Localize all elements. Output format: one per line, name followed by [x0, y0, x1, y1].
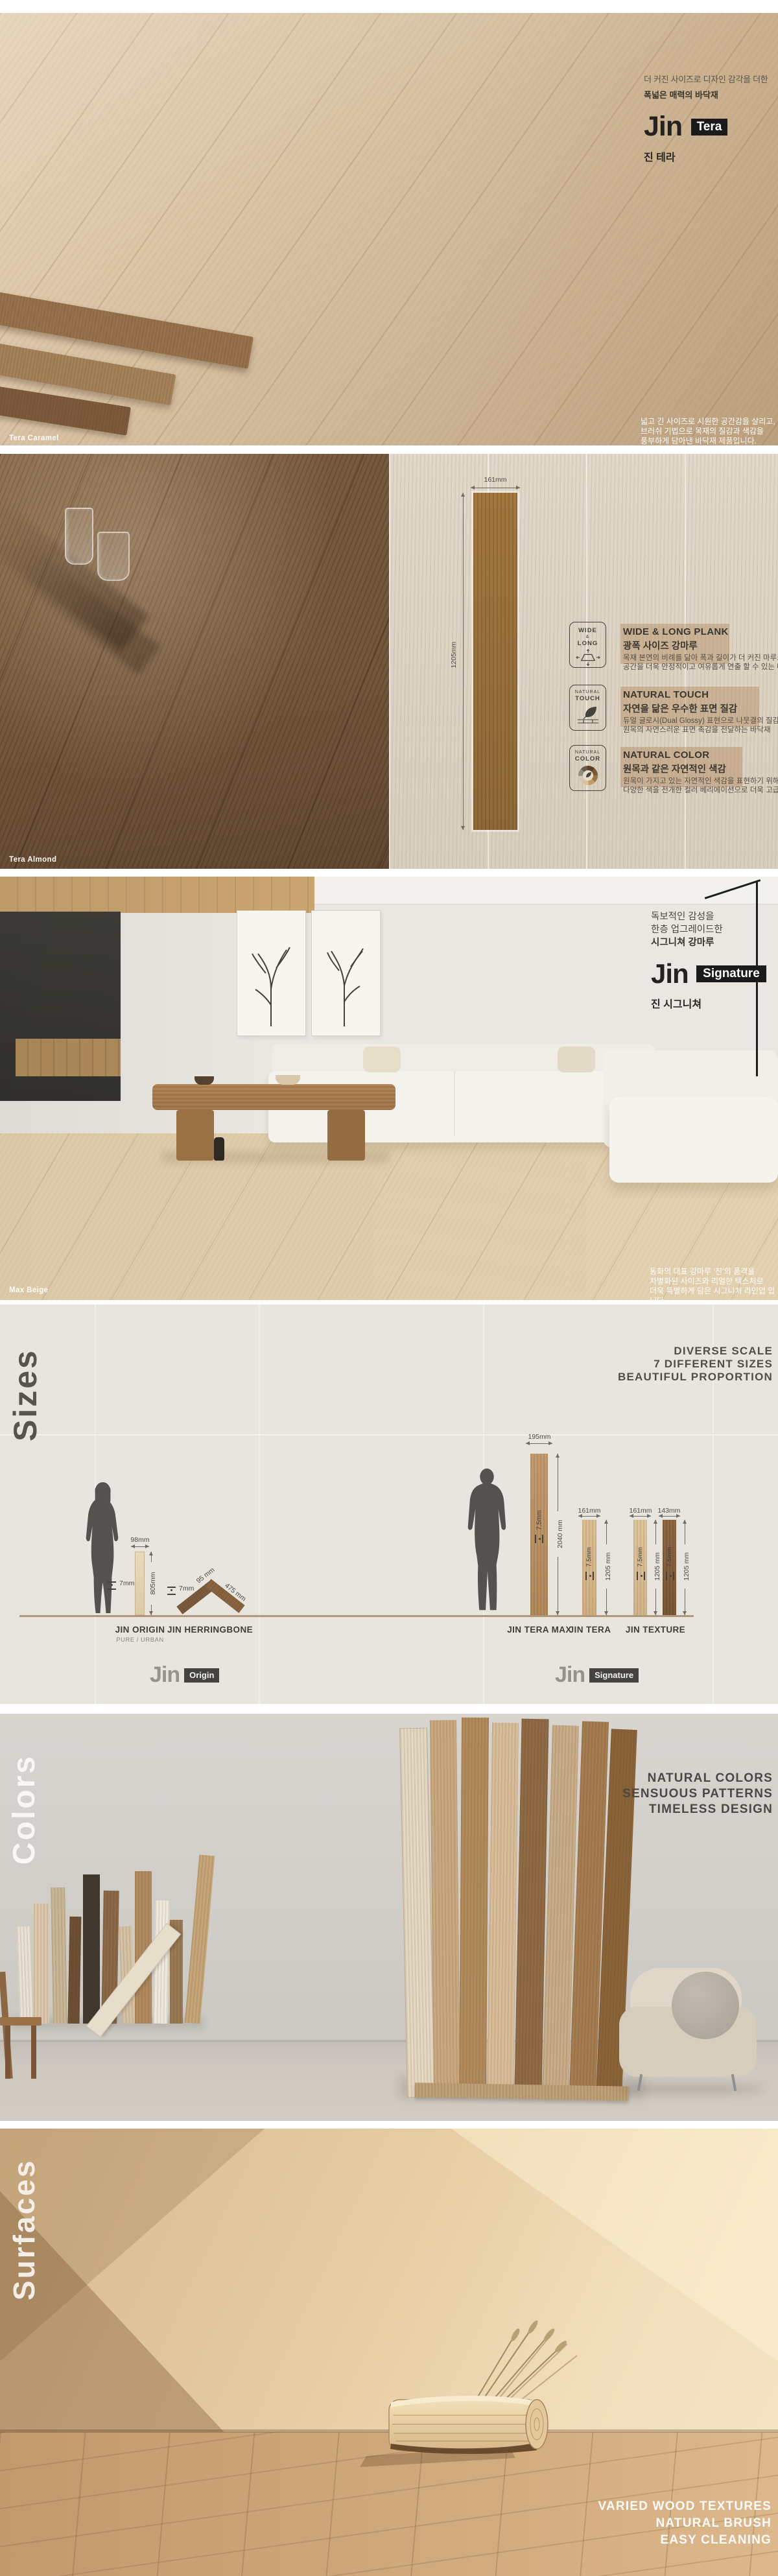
teramax-thickness-label: 7.5mm — [536, 1506, 543, 1535]
origin-thickness-icon — [108, 1581, 116, 1590]
sizes-heading: DIVERSE SCALE 7 DIFFERENT SIZES BEAUTIFU… — [618, 1345, 773, 1384]
jin-logo-text: Jin — [644, 111, 682, 142]
spec1-body2: 공간을 더욱 안정적이고 여유롭게 연출 할 수 있는 바닥재 — [623, 661, 778, 672]
signature-swatch-label: Max Beige — [9, 1286, 48, 1294]
origin-width-label: 98mm — [108, 1536, 172, 1544]
origin-logo-badge: Origin — [184, 1668, 219, 1683]
signature-intro-line2: 한층 업그레이드한 — [651, 923, 774, 936]
tera-thickness-icon — [585, 1572, 594, 1580]
tera-logo-row: Jin Tera — [644, 111, 773, 143]
table-leg-right — [327, 1110, 365, 1161]
surfaces-heading-line1: VARIED WOOD TEXTURES — [598, 2498, 772, 2515]
section-surfaces: Surfaces VARIED WOOD TEXTURES NATURAL BR… — [0, 2129, 778, 2576]
tree-painting-right — [311, 910, 381, 1036]
spec3-body2: 다양한 색을 전개한 컬러 베리에이션으로 더욱 고급스러워진 패턴 — [623, 785, 778, 795]
tera-width-arrow — [578, 1516, 600, 1517]
signature-intro-line1: 독보적인 감성을 — [651, 910, 774, 923]
color-icon-bottom: COLOR — [570, 755, 606, 763]
colors-heading-line1: NATURAL COLORS — [622, 1771, 773, 1786]
touch-icon-bottom: TOUCH — [570, 695, 606, 703]
signature-logo-row: Jin Signature — [651, 958, 774, 989]
natural-color-iconbox: NATURAL COLOR — [569, 745, 606, 791]
tall-plank-2 — [430, 1720, 460, 2096]
teramax-thickness-icon — [535, 1535, 543, 1543]
leaf-plank-icon — [576, 705, 600, 726]
section-colors: Colors NATURAL COLORS SENSUOUS PATTERNS … — [0, 1714, 778, 2121]
armchair-round-cushion — [672, 1972, 739, 2039]
male-silhouette — [462, 1467, 512, 1616]
tera-desc-line3: 풍부하게 담아낸 바닥재 제품입니다. — [641, 436, 775, 445]
sizes-section-label: Sizes — [9, 1315, 41, 1441]
tera-thickness-label: 7.5mm — [586, 1542, 593, 1572]
female-silhouette — [73, 1481, 135, 1616]
section-plank-spec: Tera Almond 161mm 1205mm WIDE & LONG WID… — [0, 454, 778, 869]
signature-desc-line2: 차별화된 사이즈와 리얼한 텍스처로 — [650, 1277, 778, 1286]
colors-heading-line3: TIMELESS DESIGN — [622, 1802, 773, 1817]
small-plank-4 — [68, 1917, 82, 2024]
colors-heading-line2: SENSUOUS PATTERNS — [622, 1786, 773, 1802]
tall-plank-4 — [487, 1723, 519, 2097]
signature-group-logo: JinSignature — [555, 1662, 639, 1688]
spec2-body2: 원목의 자연스러운 표면 촉감을 전달하는 바닥재 — [623, 724, 771, 735]
table-bowl-light — [276, 1075, 300, 1085]
surfaces-heading-line3: EASY CLEANING — [598, 2532, 772, 2549]
herringbone-thickness-icon — [167, 1587, 176, 1595]
tera-headline-block: 더 커진 사이즈로 디자인 감각을 더한 폭넓은 매력의 바닥재 Jin Ter… — [644, 73, 773, 164]
tree-painting-left — [237, 910, 306, 1036]
origin-width-arrow — [131, 1546, 149, 1547]
color-icon-top: NATURAL — [570, 750, 606, 755]
signature-description: 동화의 대표 강마루 ‘진’의 품격을 차별화된 사이즈와 리얼한 텍스처로 더… — [650, 1267, 778, 1300]
drinking-glass-2 — [97, 532, 130, 581]
chair-leg-1 — [5, 2026, 10, 2079]
section-sizes: Sizes DIVERSE SCALE 7 DIFFERENT SIZES BE… — [0, 1305, 778, 1704]
detail-lighting — [0, 454, 389, 869]
trapezoid-arrows-icon — [576, 649, 600, 666]
touch-icon-top: NATURAL — [570, 690, 606, 695]
sofa-seam — [454, 1071, 455, 1136]
herringbone-product-name: JIN HERRINGBONE — [163, 1625, 257, 1635]
sizes-heading-line3: BEAUTIFUL PROPORTION — [618, 1371, 773, 1384]
texture-thickness-a-label: 7.5mm — [637, 1542, 644, 1572]
spec2-title: NATURAL TOUCH — [623, 689, 709, 700]
jin-logo-text-signature: Jin — [651, 958, 689, 989]
tera-intro-line1: 더 커진 사이즈로 디자인 감각을 더한 — [644, 73, 773, 85]
grid-line-horizontal — [0, 1434, 778, 1436]
tall-plank-3 — [459, 1718, 489, 2096]
tera-desc-line2: 브러쉬 기법으로 목재의 질감과 색감을 — [641, 427, 775, 436]
signature-korean-name: 진 시그니쳐 — [651, 995, 774, 1011]
sizes-heading-line1: DIVERSE SCALE — [618, 1345, 773, 1358]
plank-length-dim: 1205mm — [450, 626, 458, 684]
colors-heading: NATURAL COLORS SENSUOUS PATTERNS TIMELES… — [622, 1771, 773, 1817]
leaning-plank — [185, 1854, 215, 2024]
surfaces-heading: VARIED WOOD TEXTURES NATURAL BRUSH EASY … — [598, 2498, 772, 2549]
texture-length-b-label: 1205 mm — [683, 1544, 690, 1589]
origin-logo-text: Jin — [150, 1662, 180, 1687]
tera-korean-name: 진 테라 — [644, 148, 773, 164]
table-leg-left — [176, 1110, 214, 1161]
tera-description: 넓고 긴 사이즈로 시원한 공간감을 살리고, 브러쉬 기법으로 목재의 질감과… — [641, 417, 775, 445]
plank-diagram — [473, 493, 517, 830]
small-plank-5 — [83, 1874, 100, 2024]
texture-thickness-a-icon — [637, 1572, 645, 1580]
colors-section-label: Colors — [9, 1725, 40, 1865]
table-bowl-dark — [194, 1076, 214, 1085]
section-jin-tera-hero: 더 커진 사이즈로 디자인 감각을 더한 폭넓은 매력의 바닥재 Jin Ter… — [0, 13, 778, 445]
tera-badge: Tera — [691, 119, 728, 136]
signature-desc-line1: 동화의 대표 강마루 ‘진’의 품격을 — [650, 1267, 778, 1277]
throw-pillow-1 — [363, 1046, 401, 1072]
detail-photo-wood: Tera Almond — [0, 454, 389, 869]
wide-long-icon-bottom: LONG — [570, 640, 606, 648]
wide-long-icon-top: WIDE — [570, 627, 606, 635]
wide-long-iconbox: WIDE & LONG — [569, 622, 606, 668]
chaise-seat — [609, 1097, 778, 1183]
tera-swatch-label: Tera Caramel — [9, 434, 59, 442]
herringbone-thickness-label: 7mm — [179, 1585, 194, 1592]
plank-width-arrow — [471, 488, 520, 488]
small-plank-2 — [34, 1904, 49, 2024]
spec3-title: NATURAL COLOR — [623, 750, 709, 761]
tera-length-label: 1205 mm — [604, 1544, 612, 1589]
spec2-subtitle: 자연을 닮은 우수한 표면 질감 — [623, 702, 737, 715]
signature-badge: Signature — [696, 965, 766, 982]
tera-desc-line1: 넓고 긴 사이즈로 시원한 공간감을 살리고, — [641, 417, 775, 427]
signature-group-logo-badge: Signature — [589, 1668, 639, 1683]
plank-length-arrow — [463, 493, 464, 830]
almond-swatch-label: Tera Almond — [9, 856, 56, 864]
spec1-title: WIDE & LONG PLANK — [623, 626, 729, 637]
signature-desc-line3: 더욱 특별하게 담은 시그니처 라인업 입니다. — [650, 1286, 778, 1300]
wide-long-icon-amp: & — [570, 635, 606, 640]
teramax-width-arrow — [526, 1443, 552, 1444]
tree-art-right — [312, 911, 379, 1034]
tree-art-left — [237, 911, 304, 1034]
spec1-subtitle: 광폭 사이즈 강마루 — [623, 639, 698, 652]
natural-touch-iconbox: NATURAL TOUCH — [569, 685, 606, 731]
texture-thickness-b-label: 7.5mm — [666, 1542, 674, 1572]
tera-intro-line2: 폭넓은 매력의 바닥재 — [644, 88, 773, 100]
origin-variants: PURE / URBAN — [101, 1637, 179, 1644]
signature-intro-line3: 시그니쳐 강마루 — [651, 936, 774, 949]
spec3-subtitle: 원목과 같은 자연적인 색감 — [623, 762, 726, 775]
signature-group-logo-text: Jin — [555, 1662, 585, 1687]
signature-headline-block: 독보적인 감성을 한층 업그레이드한 시그니쳐 강마루 Jin Signatur… — [651, 910, 774, 1011]
grid-line-v2 — [259, 1305, 260, 1704]
coffee-table-top — [152, 1084, 395, 1110]
origin-plank — [135, 1552, 145, 1615]
color-wheel-icon — [578, 766, 598, 785]
color-wheel-leaf — [584, 772, 592, 779]
section-jin-signature-hero: 독보적인 감성을 한층 업그레이드한 시그니쳐 강마루 Jin Signatur… — [0, 877, 778, 1300]
small-plank-3 — [51, 1887, 67, 2024]
page-root: 더 커진 사이즈로 디자인 감각을 더한 폭넓은 매력의 바닥재 Jin Ter… — [0, 0, 778, 2576]
surfaces-heading-line2: NATURAL BRUSH — [598, 2515, 772, 2532]
chair-seat — [0, 2017, 41, 2026]
throw-pillow-2 — [558, 1046, 595, 1072]
log-still-life — [353, 2317, 613, 2469]
origin-logo: JinOrigin — [150, 1662, 219, 1688]
origin-thickness-label: 7mm — [119, 1579, 134, 1587]
texture-thickness-b-icon — [666, 1572, 674, 1580]
texture-length-a-label: 1205 mm — [654, 1544, 661, 1589]
color-wheel-center — [583, 770, 593, 781]
sizes-heading-line2: 7 DIFFERENT SIZES — [618, 1358, 773, 1371]
origin-length-label: 805mm — [149, 1562, 157, 1605]
texture-width-b-label: 143mm — [637, 1507, 701, 1515]
floor-vase — [214, 1137, 224, 1161]
texture-product-name: JIN TEXTURE — [609, 1625, 701, 1635]
surfaces-section-label: Surfaces — [9, 2142, 39, 2300]
teramax-length-label: 2040 mm — [556, 1511, 564, 1557]
teramax-width-label: 195mm — [507, 1433, 572, 1441]
small-plank-1 — [16, 1926, 32, 2024]
texture-width-b-arrow — [659, 1516, 680, 1517]
chair-leg-2 — [31, 2026, 36, 2079]
drinking-glass-1 — [65, 508, 93, 565]
plank-width-dim: 161mm — [463, 476, 528, 484]
texture-width-a-arrow — [630, 1516, 651, 1517]
